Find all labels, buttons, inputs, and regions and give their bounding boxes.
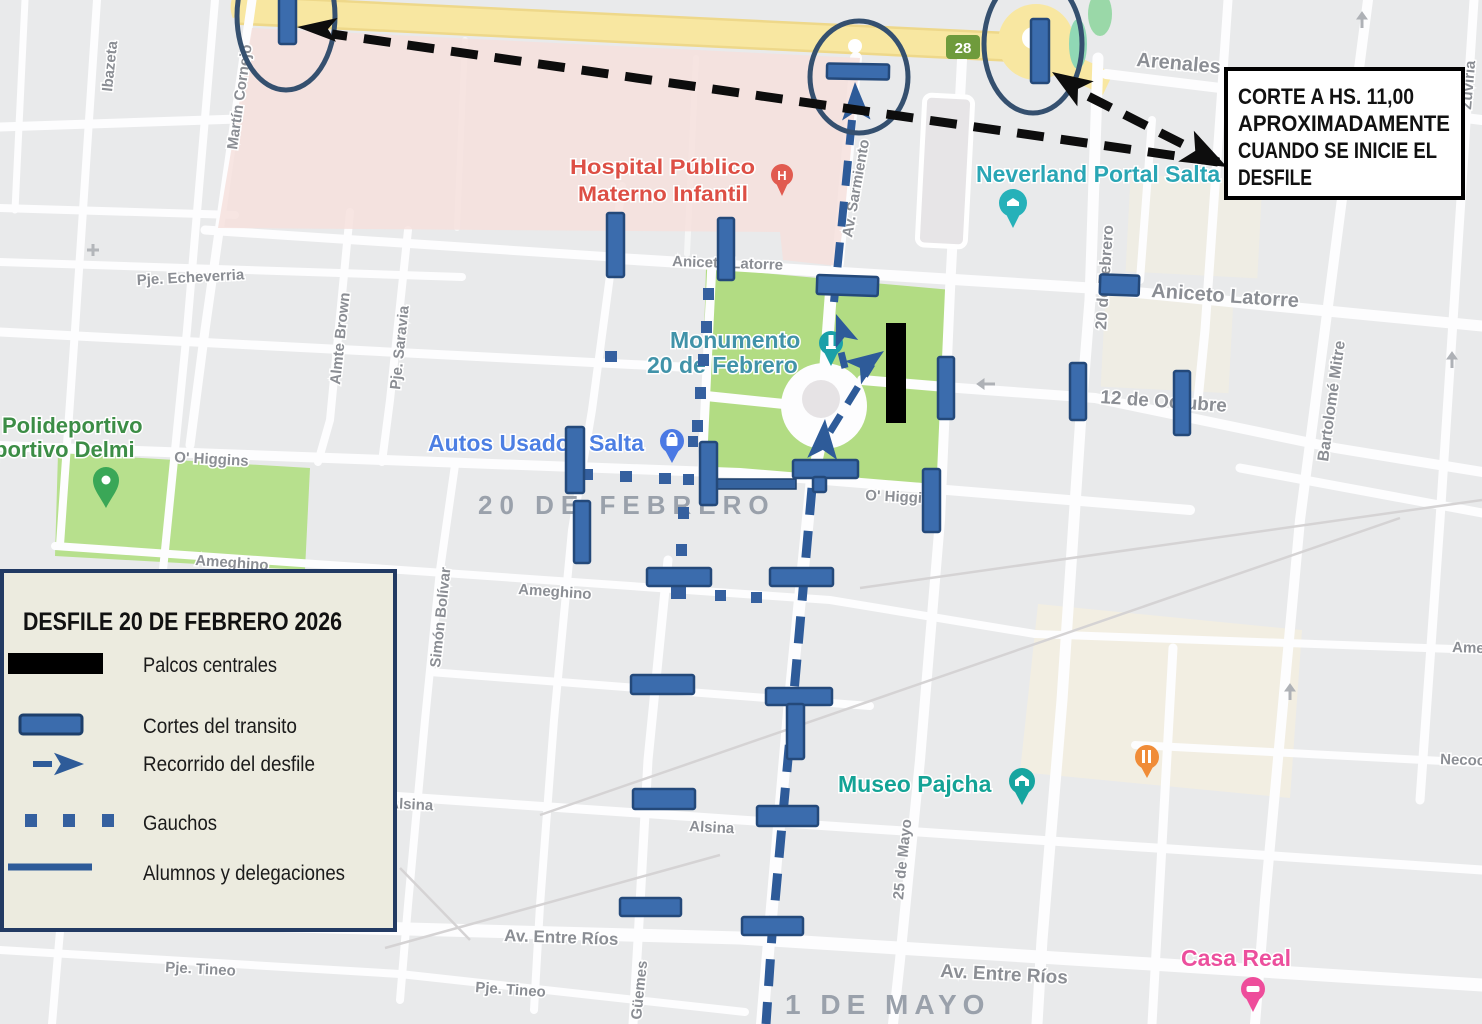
svg-text:CUANDO SE INICIE EL: CUANDO SE INICIE EL [1238,138,1437,163]
svg-text:Ameghino: Ameghino [1452,639,1482,659]
svg-text:Neverland Portal Salta: Neverland Portal Salta [976,161,1220,187]
svg-text:Av. Entre Ríos: Av. Entre Ríos [504,926,619,949]
svg-text:1 DE MAYO: 1 DE MAYO [785,989,990,1020]
svg-text:Palcos centrales: Palcos centrales [143,654,277,677]
svg-text:DESFILE: DESFILE [1238,165,1312,190]
svg-text:Polideportivo: Polideportivo [2,413,143,438]
svg-text:Materno Infantil: Materno Infantil [578,183,748,206]
svg-text:Alumnos y delegaciones: Alumnos y delegaciones [143,862,345,885]
svg-text:28: 28 [955,40,972,57]
svg-text:portivo Delmi: portivo Delmi [0,437,135,462]
svg-text:Casa Real: Casa Real [1181,945,1291,971]
svg-text:Necochea: Necochea [1440,751,1482,770]
svg-text:Cortes del transito: Cortes del transito [143,715,297,738]
svg-text:CORTE A HS. 11,00: CORTE A HS. 11,00 [1238,84,1414,109]
svg-text:H: H [777,168,786,183]
svg-text:Hospital Público: Hospital Público [570,156,755,179]
svg-text:Autos Usados Salta: Autos Usados Salta [428,430,644,456]
svg-text:DESFILE 20 DE FEBRERO 2026: DESFILE 20 DE FEBRERO 2026 [23,608,342,636]
svg-text:APROXIMADAMENTE: APROXIMADAMENTE [1238,111,1450,136]
svg-text:Gauchos: Gauchos [143,812,217,835]
svg-text:Museo Pajcha: Museo Pajcha [838,771,992,797]
svg-text:Recorrido del desfile: Recorrido del desfile [143,753,315,776]
svg-text:Alsina: Alsina [689,818,735,837]
svg-text:20 DE FEBRERO: 20 DE FEBRERO [478,490,776,520]
svg-text:Monumento: Monumento [670,327,800,353]
svg-text:20 de Febrero: 20 de Febrero [647,352,798,378]
